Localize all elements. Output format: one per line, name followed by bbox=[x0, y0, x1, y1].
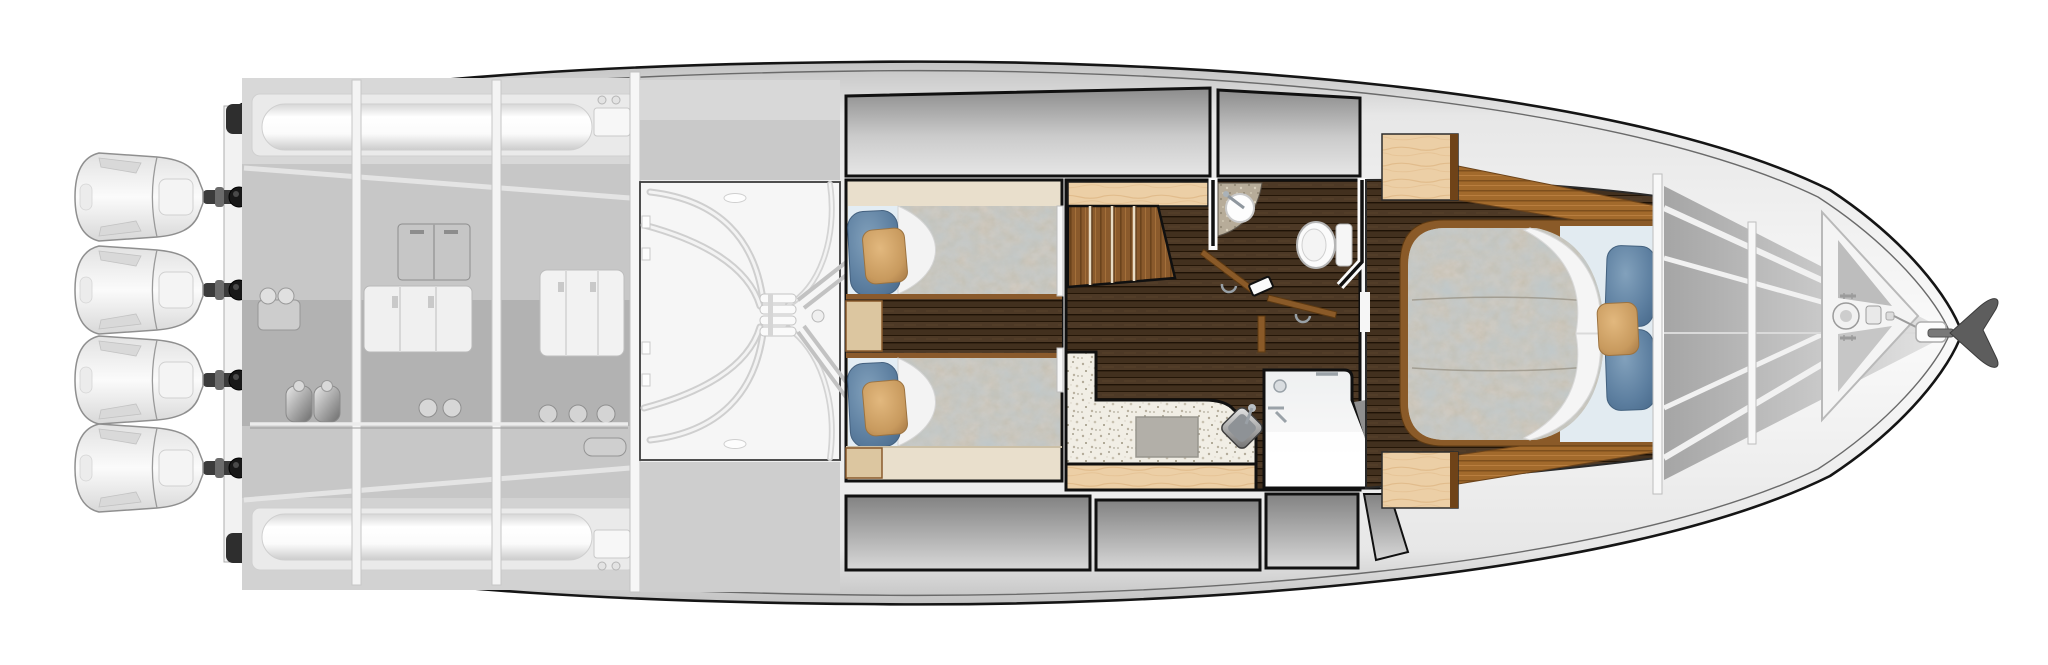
twin-berth-1 bbox=[847, 206, 1060, 296]
shower-drain bbox=[1274, 380, 1286, 392]
guest-cabin-step bbox=[846, 448, 882, 478]
yacht-floorplan bbox=[0, 0, 2048, 665]
galley-cabinet-front bbox=[1066, 464, 1256, 490]
bow-bulkhead bbox=[1748, 222, 1756, 444]
master-cabinet-bottom bbox=[1382, 452, 1458, 508]
door-jamb bbox=[1057, 206, 1063, 296]
fuel-tank-top bbox=[252, 94, 636, 156]
toilet bbox=[1297, 222, 1352, 268]
outboard-engine-3 bbox=[75, 336, 249, 424]
gold-pillow bbox=[1597, 302, 1640, 356]
outboard-engines bbox=[75, 153, 249, 512]
engine-room-bulkhead-2 bbox=[492, 80, 501, 585]
outboard-engine-1 bbox=[75, 153, 249, 241]
floorplan-canvas bbox=[0, 0, 2048, 665]
guest-cabin-rug bbox=[846, 301, 882, 351]
stair-treads bbox=[1068, 206, 1175, 287]
genset-box bbox=[540, 270, 624, 356]
stair-landing bbox=[1068, 182, 1208, 206]
outboard-engine-4 bbox=[75, 424, 249, 512]
gold-pillow bbox=[862, 379, 909, 436]
engine-room bbox=[242, 72, 640, 592]
fuel-tank-bottom bbox=[252, 508, 636, 570]
door-jamb bbox=[1057, 348, 1063, 392]
guest-cabin bbox=[846, 180, 1063, 481]
engine-room-bulkhead-1 bbox=[352, 80, 361, 585]
midship-block bbox=[1066, 178, 1394, 490]
master-cabinet-top bbox=[1382, 134, 1458, 200]
steering-compartment bbox=[640, 80, 862, 592]
pump-unit bbox=[258, 288, 300, 330]
bottom-storage-room-3 bbox=[1266, 494, 1358, 568]
twin-berth-2 bbox=[847, 358, 1060, 448]
bottom-storage-room-2 bbox=[1096, 500, 1260, 570]
master-bed bbox=[1400, 220, 1656, 446]
outboard-engine-2 bbox=[75, 246, 249, 334]
gold-pillow bbox=[862, 227, 909, 284]
master-forward-bulkhead bbox=[1653, 174, 1662, 494]
generator bbox=[364, 286, 472, 352]
top-storage-room-2 bbox=[1218, 90, 1360, 176]
battery-bank bbox=[398, 224, 470, 280]
engine-room-bulkhead-3 bbox=[630, 72, 640, 592]
door-frame-strip bbox=[1258, 316, 1265, 352]
top-storage-room-1 bbox=[846, 88, 1210, 176]
stove-inset bbox=[1136, 417, 1198, 457]
bottom-storage-room-1 bbox=[846, 496, 1090, 570]
